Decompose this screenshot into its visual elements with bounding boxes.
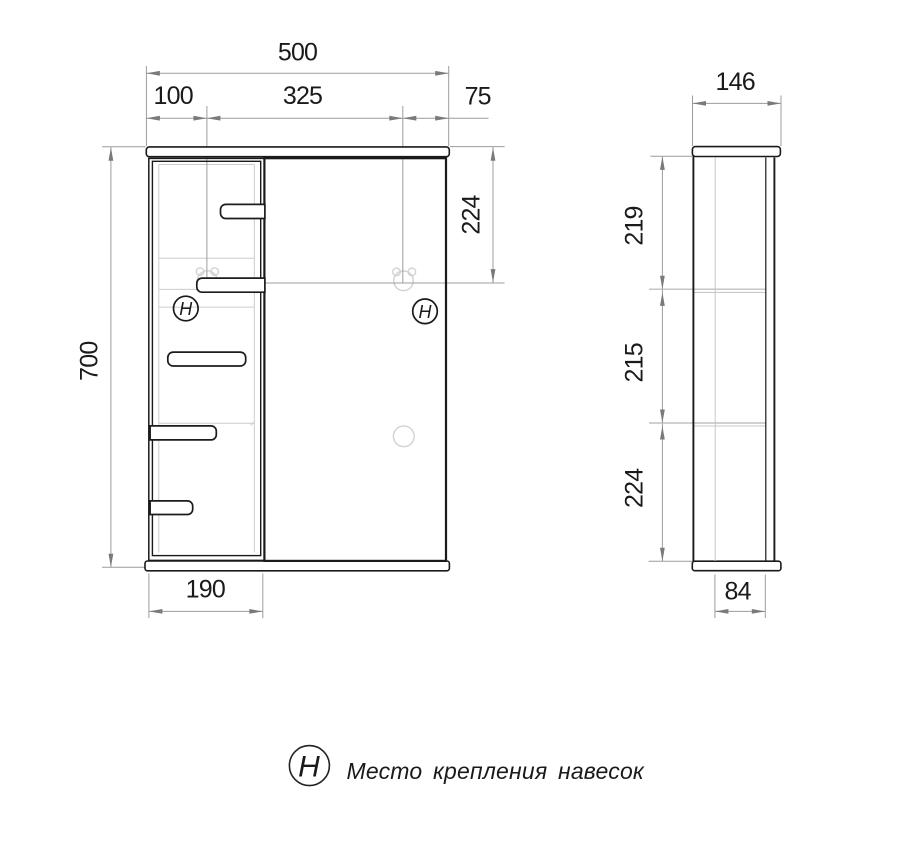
svg-text:146: 146	[716, 68, 755, 96]
svg-text:215: 215	[620, 343, 648, 382]
svg-text:H: H	[179, 299, 193, 319]
svg-text:190: 190	[186, 576, 225, 604]
svg-text:224: 224	[457, 194, 485, 234]
svg-text:219: 219	[620, 206, 648, 245]
svg-text:100: 100	[154, 82, 193, 110]
svg-text:700: 700	[75, 342, 103, 381]
svg-text:H: H	[419, 302, 433, 322]
svg-text:75: 75	[465, 83, 491, 111]
svg-text:84: 84	[724, 577, 751, 605]
svg-text:325: 325	[283, 82, 322, 110]
svg-text:Место крепления навесок: Место крепления навесок	[347, 758, 645, 784]
svg-text:500: 500	[278, 39, 317, 67]
svg-text:224: 224	[620, 468, 648, 508]
svg-text:H: H	[298, 751, 320, 784]
